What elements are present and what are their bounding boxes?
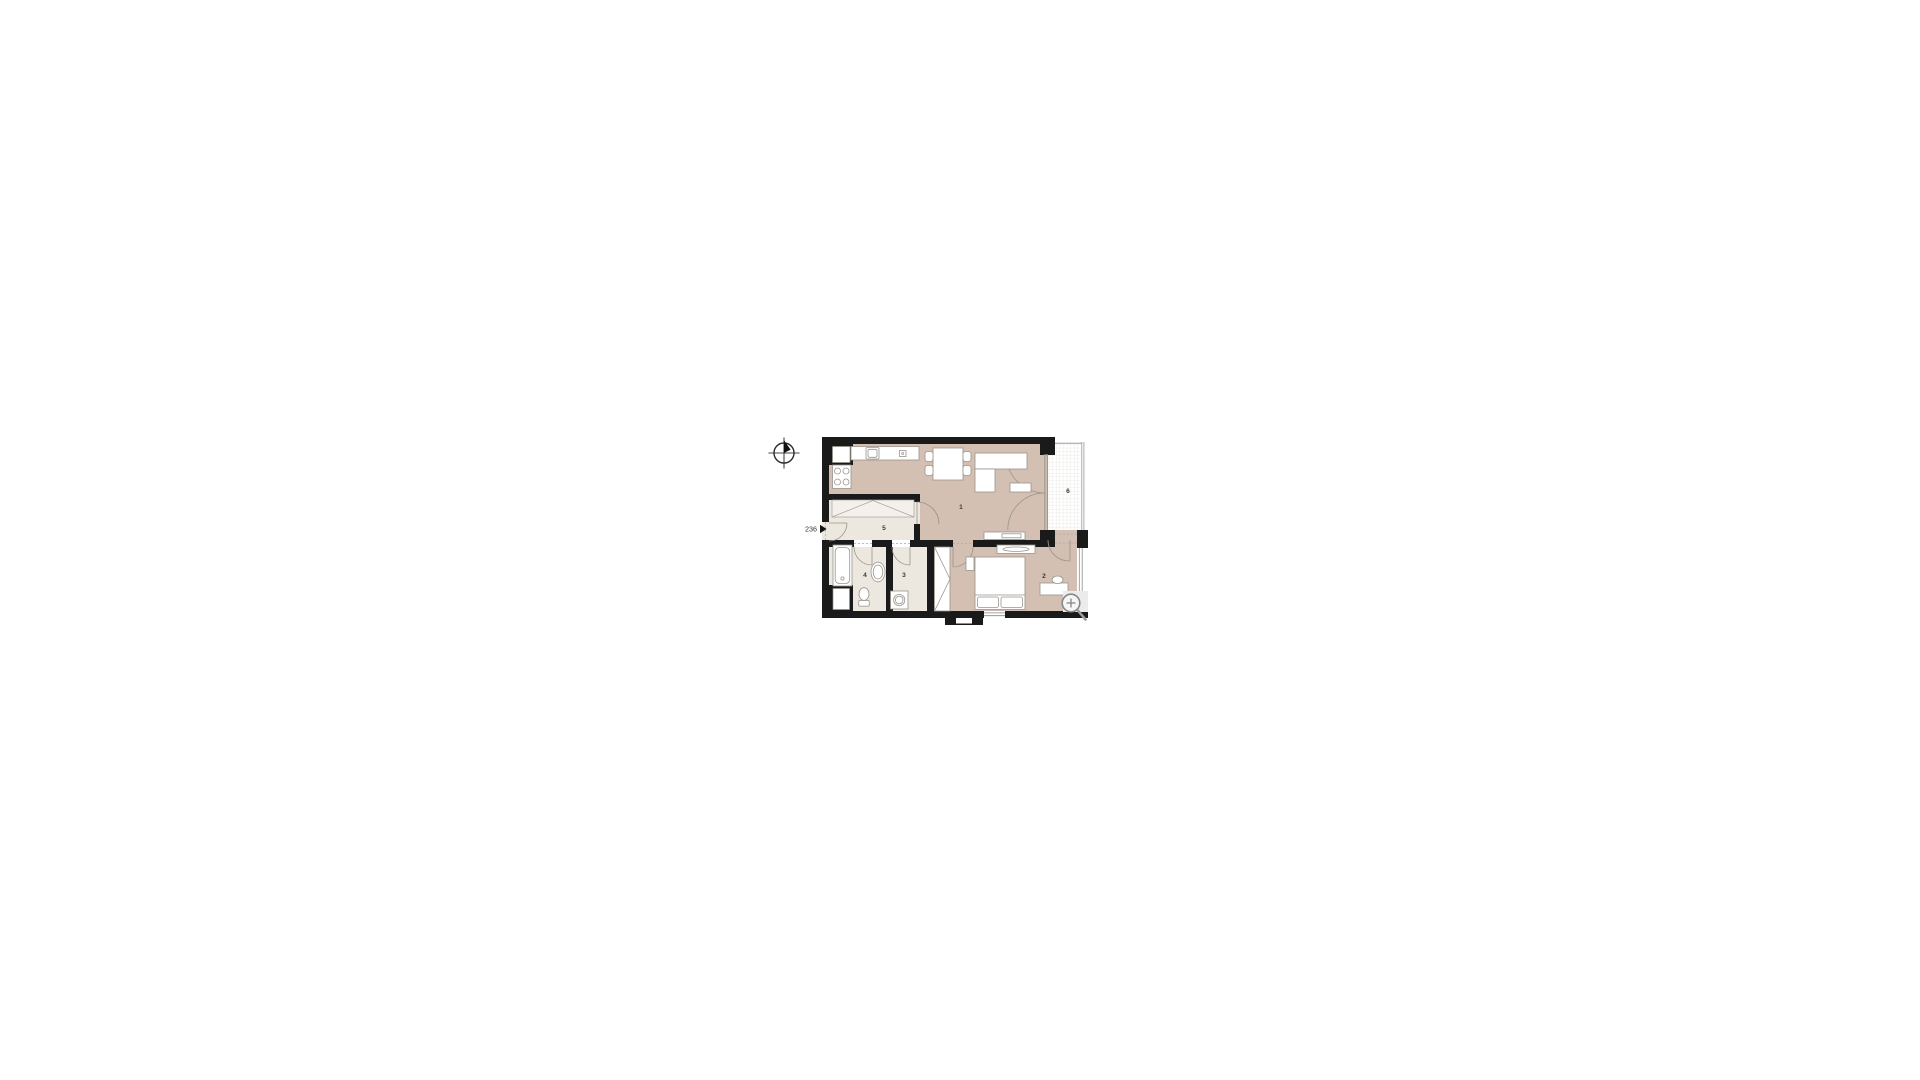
pillow [1001,597,1023,608]
chair [963,466,971,476]
magnifier-icon [1054,590,1090,630]
hall-wardrobe [832,500,914,517]
kitchen-counter [851,447,919,461]
room-label-1: 1 [959,504,963,511]
toilet [859,588,869,606]
pillow [978,597,999,608]
room-label-5: 5 [882,525,886,532]
dining-table [933,448,963,480]
bedroom-wardrobe [935,547,951,611]
room-label-6: 6 [1066,488,1070,495]
bathtub [833,545,852,586]
floor-plan-drawing: 1 2 3 4 5 6 236 [792,437,1088,627]
washing-machine [891,591,909,609]
coffee-table [1010,483,1031,492]
zoom-button[interactable] [1054,590,1090,630]
room-label-3: 3 [902,572,906,579]
chair [925,466,933,476]
desk-chair [1052,576,1063,584]
shaft-top [833,447,851,463]
floor-plan[interactable]: 1 2 3 4 5 6 236 [792,437,1088,627]
room-label-2: 2 [1042,573,1046,580]
chair [963,452,971,462]
bed [975,557,1025,610]
room-label-4: 4 [863,572,867,579]
page-canvas: 1 2 3 4 5 6 236 [0,0,1920,1080]
nightstand [966,557,974,571]
shaft-bottom [833,589,850,610]
dresser [997,545,1035,554]
chair [925,452,933,462]
entrance-number: 236 [805,525,817,534]
washbasin [871,562,885,582]
